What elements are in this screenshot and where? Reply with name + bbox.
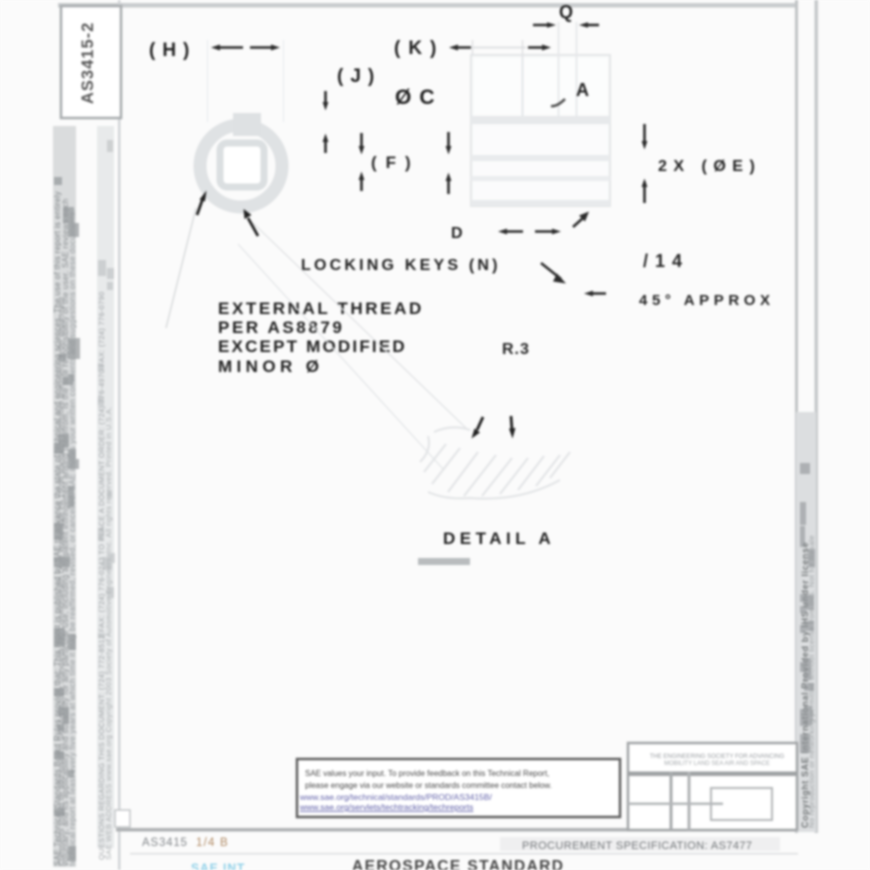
svg-text:PROCUREMENT SPECIFICATION: AS7: PROCUREMENT SPECIFICATION: AS7477: [522, 840, 752, 852]
svg-text:EXCEPT MODIFIED: EXCEPT MODIFIED: [218, 337, 407, 356]
svg-text:(J): (J): [337, 66, 381, 87]
svg-text:AEROSPACE STANDARD: AEROSPACE STANDARD: [352, 858, 564, 870]
svg-text:AS3415: AS3415: [142, 837, 188, 849]
svg-text:SAE values your input. To prov: SAE values your input. To provide feedba…: [305, 769, 549, 778]
svg-text:(F): (F): [371, 153, 420, 172]
svg-text:AS3415-2: AS3415-2: [79, 22, 97, 104]
svg-text:THE ENGINEERING SOCIETY FOR AD: THE ENGINEERING SOCIETY FOR ADVANCING: [650, 754, 785, 760]
svg-text:2X (ØE): 2X (ØE): [658, 158, 761, 175]
svg-text:SAE INT: SAE INT: [191, 861, 245, 870]
svg-text:R.3: R.3: [502, 341, 530, 358]
svg-text:www.sae.org/technical/standard: www.sae.org/technical/standards/PROD/AS3…: [299, 792, 492, 802]
svg-text:Q: Q: [559, 2, 573, 22]
svg-text:LOCKING KEYS (N): LOCKING KEYS (N): [301, 257, 501, 274]
svg-text:D: D: [451, 225, 463, 242]
svg-text:(K): (K): [394, 38, 444, 59]
svg-text:MOBILITY LAND SEA AIR AND SPAC: MOBILITY LAND SEA AIR AND SPACE: [664, 761, 770, 767]
svg-text:ØC: ØC: [395, 86, 443, 109]
svg-text:No reproduction or networking: No reproduction or networking permitted …: [807, 535, 816, 828]
svg-text:A: A: [576, 80, 589, 100]
svg-text:MINOR Ø: MINOR Ø: [218, 357, 323, 376]
svg-text:1/4 B: 1/4 B: [196, 837, 229, 849]
svg-text:please engage via our website: please engage via our website or standar…: [305, 781, 552, 790]
svg-text:technical report at least ever: technical report at least every five yea…: [68, 209, 77, 866]
svg-text:EXTERNAL THREAD: EXTERNAL THREAD: [218, 299, 424, 318]
svg-text:DETAIL A: DETAIL A: [443, 529, 555, 548]
svg-text:PER AS8879: PER AS8879: [218, 318, 344, 337]
svg-text:(H): (H): [149, 40, 196, 61]
svg-text:www.sae.org/servlets/techtrack: www.sae.org/servlets/techtracking/techre…: [299, 802, 473, 812]
svg-text:/14: /14: [643, 251, 689, 271]
svg-text:45° APPROX: 45° APPROX: [639, 292, 775, 309]
svg-text:SAE WEB ADDRESS www.sae.org Co: SAE WEB ADDRESS www.sae.org Copyright 20…: [104, 407, 113, 860]
